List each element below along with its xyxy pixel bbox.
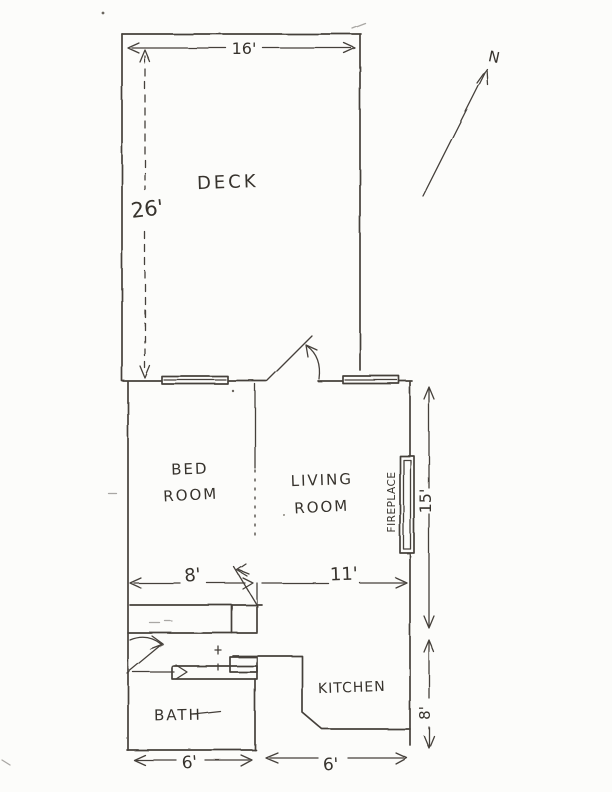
bedroom-living-divider-wall — [255, 384, 257, 604]
bedroom-width-value: 8' — [183, 564, 201, 586]
living-room-window — [343, 376, 399, 384]
floor-plan-sheet: DECK N 16' 26' BED ROOM LIVING ROOM FIRE… — [0, 0, 612, 792]
deck-width-value: 16' — [232, 39, 257, 58]
fireplace-symbol — [400, 456, 414, 553]
fireplace-label: FIREPLACE — [386, 472, 398, 533]
kitchen-width-value: 6' — [322, 755, 339, 776]
floor-plan-sketch: DECK N 16' 26' BED ROOM LIVING ROOM FIRE… — [0, 0, 612, 792]
scan-specks — [2, 12, 365, 765]
north-arrow — [423, 69, 488, 196]
living-room-label-line2: ROOM — [294, 497, 350, 518]
deck-door-swing — [267, 336, 320, 381]
living-width-value: 11' — [330, 564, 359, 586]
bath-width-value: 6' — [181, 752, 198, 773]
bath-label: BATH — [154, 706, 202, 725]
north-label: N — [487, 47, 502, 67]
hall-closet — [128, 605, 262, 633]
living-room-label-line1: LIVING — [290, 470, 353, 490]
bedroom-window — [162, 377, 228, 385]
kitchen-label: KITCHEN — [318, 679, 386, 697]
main-depth-value: 15' — [416, 489, 435, 514]
deck-depth-value: 26' — [130, 195, 165, 223]
bedroom-label-line2: ROOM — [163, 485, 219, 506]
kitchen-depth-value: 8' — [416, 706, 434, 720]
deck-label: DECK — [197, 171, 259, 194]
width-dimension-line — [130, 578, 407, 589]
bedroom-label-line1: BED — [171, 459, 209, 478]
hall-door-swing — [127, 636, 163, 673]
bedroom-door-swing — [234, 564, 258, 607]
kitchen-depth-dimension — [424, 640, 434, 748]
